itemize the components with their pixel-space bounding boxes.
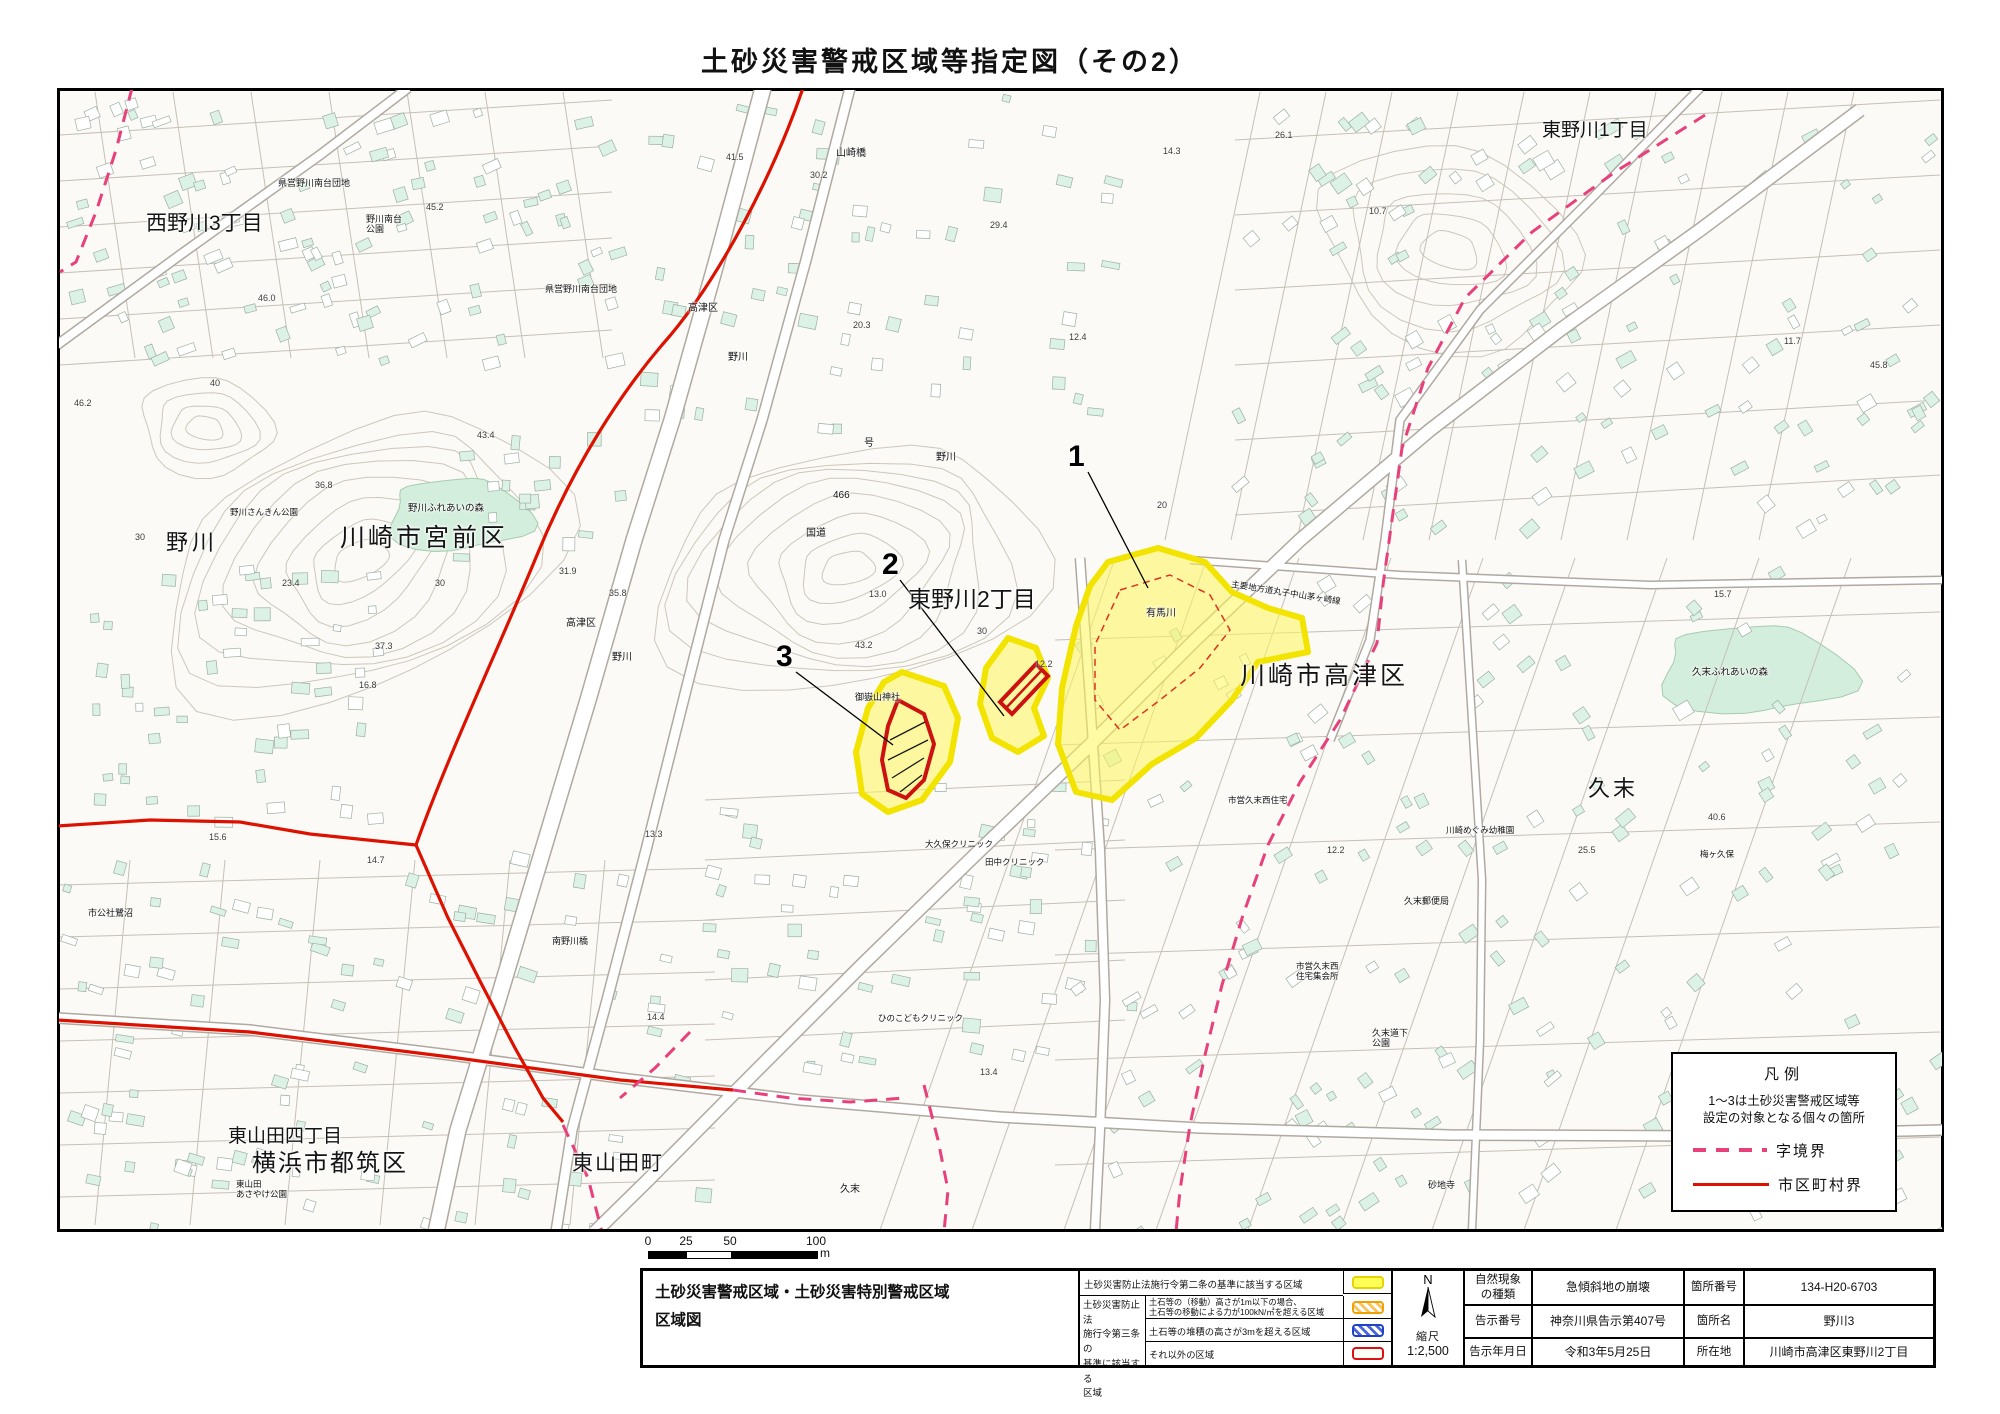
info-value-location: 川崎市高津区東野川2丁目 <box>1743 1337 1933 1365</box>
north-letter: N <box>1423 1272 1432 1287</box>
scale-label: 縮尺 <box>1393 1328 1463 1344</box>
swatch-special-movement <box>1343 1296 1391 1319</box>
legend-item-municipal-boundary: 市区町村界 <box>1693 1174 1895 1195</box>
legend-row-movement: 土石等の（移動）高さが1m以下の場合、 土石等の移動による力が100kN/㎡を超… <box>1146 1296 1343 1319</box>
scale-tick: 50 <box>723 1234 736 1248</box>
north-arrow-icon: N <box>1410 1271 1446 1321</box>
legend-note: 1～3は土砂災害警戒区域等 設定の対象となる個々の箇所 <box>1673 1093 1895 1127</box>
yellow-swatch <box>1352 1276 1384 1289</box>
scale-tick: 25 <box>679 1234 692 1248</box>
dashed-line-sample <box>1693 1148 1767 1152</box>
scale-tick: 0 <box>645 1234 652 1248</box>
scale-segment <box>687 1252 731 1258</box>
map-legend-box: 凡例 1～3は土砂災害警戒区域等 設定の対象となる個々の箇所 字境界 市区町村界 <box>1671 1052 1897 1212</box>
legend-title: 凡例 <box>1673 1063 1895 1084</box>
info-value-notice-date: 令和3年5月25日 <box>1531 1337 1683 1365</box>
info-label-location: 所在地 <box>1683 1337 1743 1365</box>
info-value-site-name: 野川3 <box>1743 1304 1933 1337</box>
solid-line-sample <box>1693 1183 1769 1187</box>
page: 土砂災害警戒区域等指定図（その2） 西野川3丁目東野川1丁目川崎市宮前区野川東野… <box>0 0 2000 1414</box>
red-outline-swatch <box>1352 1347 1384 1360</box>
legend-item-label: 市区町村界 <box>1778 1174 1863 1195</box>
scale-segment <box>731 1252 817 1258</box>
map-sheet-title: 土砂災害警戒区域・土砂災害特別警戒区域 区域図 <box>643 1271 1080 1365</box>
legend-item-aza-boundary: 字境界 <box>1693 1140 1895 1161</box>
orange-hatch-swatch <box>1352 1301 1384 1314</box>
swatch-special-deposit <box>1343 1319 1391 1342</box>
info-label-phenomenon: 自然現象 の種類 <box>1463 1271 1531 1304</box>
compass-cell: N 縮尺 1:2,500 <box>1391 1271 1463 1365</box>
scale-value: 1:2,500 <box>1393 1344 1463 1358</box>
scale-segment <box>649 1252 687 1258</box>
legend-row-other: それ以外の区域 <box>1146 1342 1343 1365</box>
info-label-notice-date: 告示年月日 <box>1463 1337 1531 1365</box>
swatch-warning-zone <box>1343 1271 1391 1294</box>
scale-unit: m <box>820 1246 830 1260</box>
bottom-info-table: 土砂災害警戒区域・土砂災害特別警戒区域 区域図 土砂災害防止法施行令第二条の基準… <box>640 1268 1936 1368</box>
scale-bar-rule <box>648 1251 818 1259</box>
info-label-notice-number: 告示番号 <box>1463 1304 1531 1337</box>
legend-row-article2: 土砂災害防止法施行令第二条の基準に該当する区域 <box>1080 1271 1343 1296</box>
scale-bar: 0 25 50 100 m <box>640 1234 890 1268</box>
info-value-notice-number: 神奈川県告示第407号 <box>1531 1304 1683 1337</box>
legend-item-label: 字境界 <box>1776 1140 1827 1161</box>
legend-group-article3: 土砂災害防止法 施行令第三条の 基準に該当する 区域 <box>1080 1296 1146 1365</box>
legend-row-deposit: 土石等の堆積の高さが3mを超える区域 <box>1146 1319 1343 1342</box>
info-label-site-name: 箇所名 <box>1683 1304 1743 1337</box>
info-value-phenomenon: 急傾斜地の崩壊 <box>1531 1271 1683 1304</box>
info-value-site-number: 134-H20-6703 <box>1743 1271 1933 1304</box>
swatch-special-other <box>1343 1342 1391 1365</box>
blue-hatch-swatch <box>1352 1324 1384 1337</box>
info-label-site-number: 箇所番号 <box>1683 1271 1743 1304</box>
